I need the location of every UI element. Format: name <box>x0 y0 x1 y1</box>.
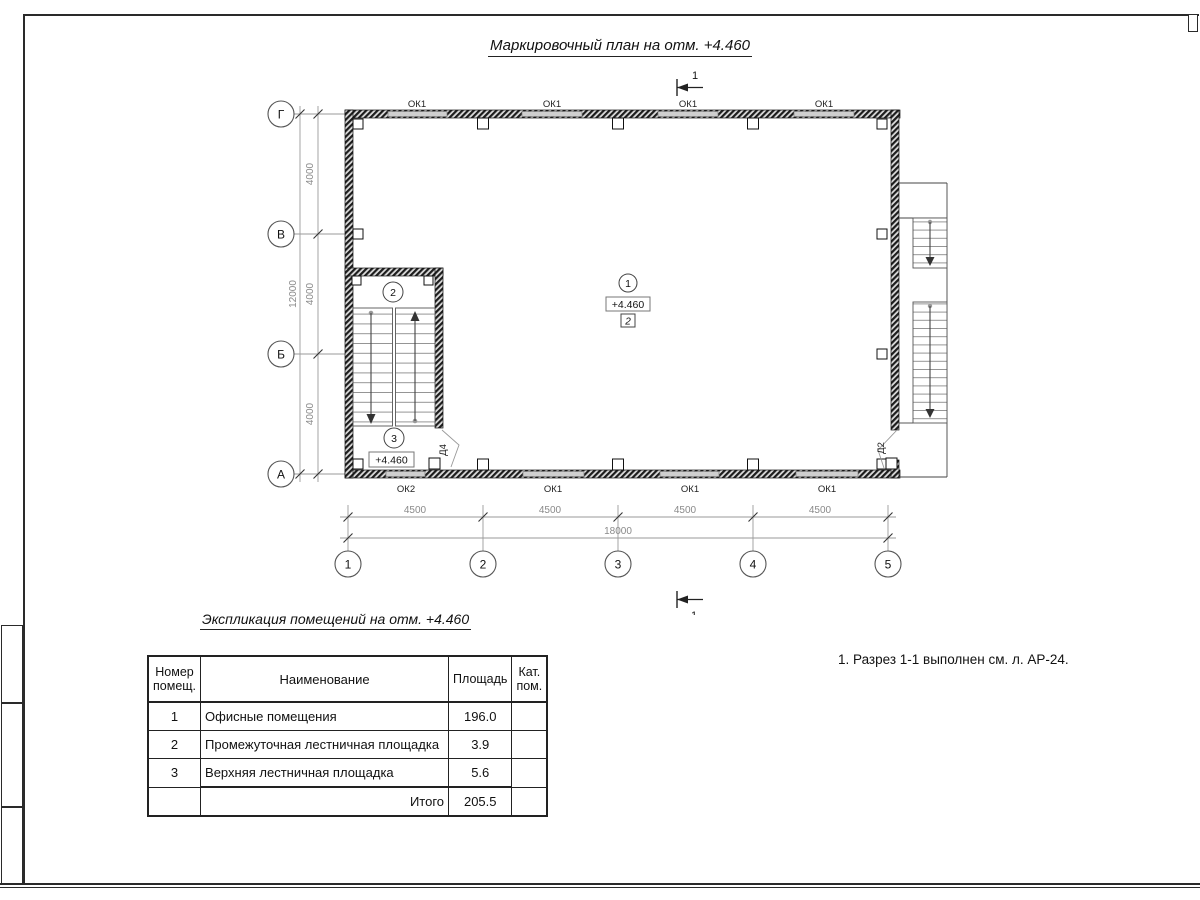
svg-text:ОК1: ОК1 <box>679 99 697 110</box>
column-axis-bubbles: 1 2 3 4 5 <box>335 551 901 577</box>
svg-text:А: А <box>277 468 285 482</box>
svg-text:ОК1: ОК1 <box>544 484 562 495</box>
svg-text:2: 2 <box>480 558 487 572</box>
cell-cat <box>512 731 547 759</box>
section-mark-bottom: 1 <box>677 591 703 615</box>
total-value: 205.5 <box>449 787 512 816</box>
svg-text:1: 1 <box>692 70 698 82</box>
drawing-sheet: Маркировочный план на отм. +4.460 Экспли… <box>0 0 1200 900</box>
note-text: 1. Разрез 1-1 выполнен см. л. АР-24. <box>838 652 1069 667</box>
svg-text:ОК1: ОК1 <box>818 484 836 495</box>
svg-text:ОК1: ОК1 <box>408 99 426 110</box>
header-category: Кат.пом. <box>512 656 547 702</box>
cell-area: 3.9 <box>449 731 512 759</box>
frame-edge-box-2 <box>1 703 23 807</box>
cell-cat <box>512 759 547 788</box>
svg-text:18000: 18000 <box>604 526 632 537</box>
frame-bottom-line-2 <box>0 887 1200 888</box>
explication-table: Номерпомещ. Наименование Площадь Кат.пом… <box>147 655 548 817</box>
table-row: 2 Промежуточная лестничная площадка 3.9 <box>148 731 547 759</box>
stairwell-flights <box>353 308 435 426</box>
svg-text:4: 4 <box>750 558 757 572</box>
table-header-row: Номерпомещ. Наименование Площадь Кат.пом… <box>148 656 547 702</box>
cell-num: 3 <box>148 759 201 788</box>
svg-text:5: 5 <box>885 558 892 572</box>
table-total-row: Итого 205.5 <box>148 787 547 816</box>
door-label-d2: Д2 <box>876 442 887 454</box>
header-name: Наименование <box>201 656 449 702</box>
svg-text:12000: 12000 <box>288 280 299 308</box>
cell-name: Верхняя лестничная площадка <box>201 759 449 788</box>
svg-text:+4.460: +4.460 <box>375 455 408 467</box>
cell-num: 2 <box>148 731 201 759</box>
svg-text:2: 2 <box>390 287 396 299</box>
table-row: 1 Офисные помещения 196.0 <box>148 702 547 731</box>
svg-text:ОК1: ОК1 <box>543 99 561 110</box>
svg-text:4500: 4500 <box>809 505 832 516</box>
svg-text:ОК1: ОК1 <box>815 99 833 110</box>
svg-text:+4.460: +4.460 <box>612 299 645 311</box>
cell-name: Офисные помещения <box>201 702 449 731</box>
frame-bottom-line-1 <box>0 883 1200 885</box>
room-mark-1: 1 +4.460 2 <box>606 274 650 328</box>
svg-text:ОК2: ОК2 <box>397 484 415 495</box>
svg-text:3: 3 <box>391 433 397 445</box>
svg-text:1: 1 <box>625 278 631 290</box>
svg-text:4000: 4000 <box>305 162 316 185</box>
section-mark-top: 1 <box>677 70 703 96</box>
svg-text:1: 1 <box>691 610 697 615</box>
svg-text:4000: 4000 <box>305 402 316 425</box>
cell-cat <box>512 702 547 731</box>
door-swings <box>442 430 897 468</box>
svg-text:ОК1: ОК1 <box>681 484 699 495</box>
svg-text:4500: 4500 <box>674 505 697 516</box>
cell-area: 5.6 <box>449 759 512 788</box>
frame-edge-box-3 <box>1 807 23 884</box>
frame-edge-box-1 <box>1 625 23 703</box>
svg-text:Г: Г <box>278 108 285 122</box>
windows <box>386 112 858 477</box>
cell-num-empty <box>148 787 201 816</box>
svg-text:3: 3 <box>615 558 622 572</box>
svg-text:4500: 4500 <box>539 505 562 516</box>
svg-text:4000: 4000 <box>305 282 316 305</box>
floor-plan: Д4 Д2 ОК1 ОК1 ОК1 ОК1 ОК2 ОК1 ОК1 ОК1 Г … <box>250 55 980 615</box>
room-mark-3: 3 +4.460 <box>369 428 414 467</box>
page-title: Маркировочный план на отм. +4.460 <box>420 37 820 54</box>
door-label-d4: Д4 <box>438 444 449 456</box>
svg-text:Б: Б <box>277 348 285 362</box>
frame-left-line <box>23 14 25 885</box>
cell-num: 1 <box>148 702 201 731</box>
table-row: 3 Верхняя лестничная площадка 5.6 <box>148 759 547 788</box>
svg-text:В: В <box>277 228 285 242</box>
frame-top-line <box>23 14 1199 16</box>
exterior-stair <box>899 183 947 477</box>
total-label: Итого <box>201 787 449 816</box>
cell-area: 196.0 <box>449 702 512 731</box>
cell-cat-empty <box>512 787 547 816</box>
svg-text:1: 1 <box>345 558 352 572</box>
room-mark-2: 2 <box>383 282 403 302</box>
header-area: Площадь <box>449 656 512 702</box>
frame-corner-box <box>1188 14 1198 32</box>
cell-name: Промежуточная лестничная площадка <box>201 731 449 759</box>
svg-text:2: 2 <box>624 317 631 328</box>
header-room-number: Номерпомещ. <box>148 656 201 702</box>
svg-text:4500: 4500 <box>404 505 427 516</box>
